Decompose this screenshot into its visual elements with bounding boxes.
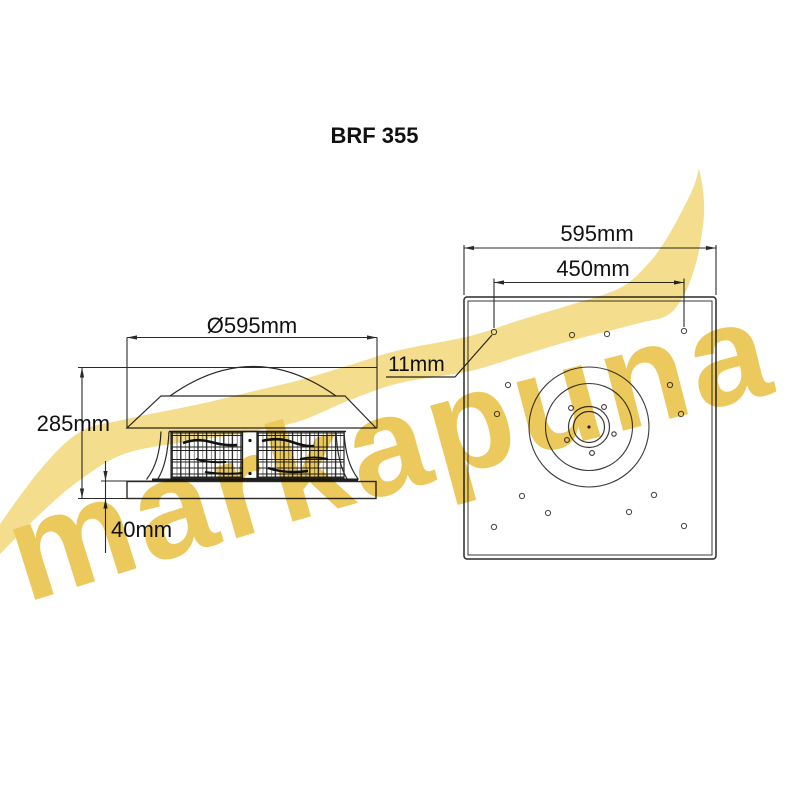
svg-text:450mm: 450mm [556, 256, 629, 281]
svg-text:BRF 355: BRF 355 [330, 123, 418, 148]
svg-text:Ø595mm: Ø595mm [207, 313, 297, 338]
svg-text:595mm: 595mm [560, 221, 633, 246]
